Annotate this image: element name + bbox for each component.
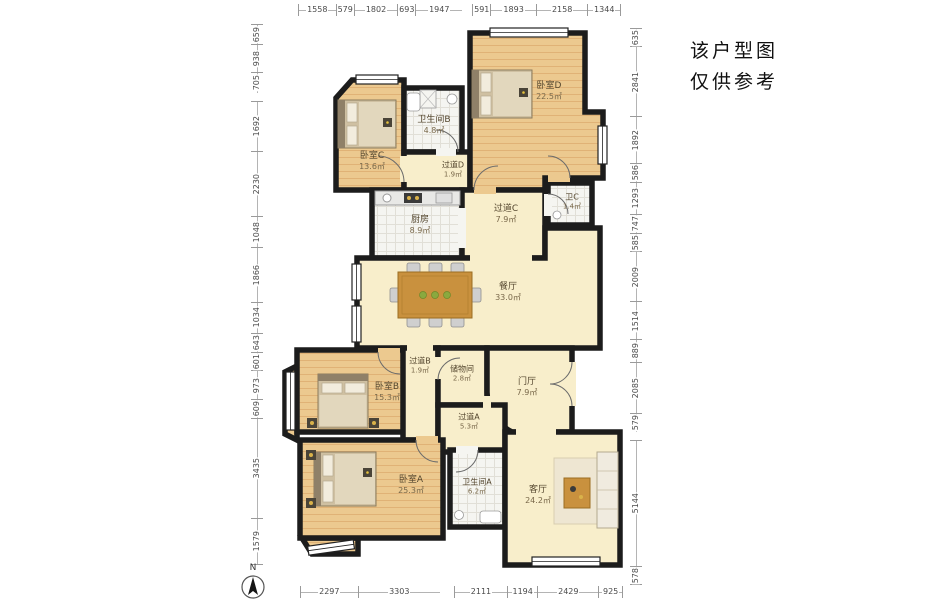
room-area: 13.6㎡ bbox=[359, 163, 385, 172]
room-name: 储物间 bbox=[450, 365, 474, 374]
dim-strip-top: 1558 579 1802 693 1947 591 1893 2158 134… bbox=[298, 4, 621, 16]
kitchen-sink bbox=[383, 194, 391, 202]
dim: 578 bbox=[630, 566, 642, 584]
dim: 5144 bbox=[630, 440, 642, 566]
dim: 889 bbox=[630, 339, 642, 362]
bed-bedroom-a bbox=[306, 450, 376, 508]
room-area: 33.0㎡ bbox=[495, 294, 521, 303]
room-area: 2.8㎡ bbox=[450, 375, 474, 383]
room-area: 24.2㎡ bbox=[525, 497, 551, 506]
disclaimer-note: 该户型图 仅供参考 bbox=[690, 36, 778, 99]
dim: 925 bbox=[598, 586, 622, 598]
bed-bedroom-d bbox=[472, 70, 532, 118]
dim: 2841 bbox=[630, 46, 642, 116]
shaft bbox=[420, 90, 436, 108]
dim: 1194 bbox=[507, 586, 537, 598]
room-label-corridor-b: 过道B 1.9㎡ bbox=[409, 357, 431, 374]
kitchen-counter bbox=[375, 191, 460, 205]
room-name: 过道B bbox=[409, 357, 431, 366]
window-bedroom-d-top bbox=[490, 28, 568, 37]
room-label-corridor-c: 过道C 7.9㎡ bbox=[494, 205, 518, 225]
floorplan-screenshot: 卧室C 13.6㎡ 卫生间B 4.8㎡ 过道D 1.9㎡ 卧室D 22.5㎡ 厨… bbox=[0, 0, 935, 607]
dim: 1558 bbox=[298, 4, 336, 16]
dim: 2297 bbox=[300, 586, 358, 598]
room-name: 门厅 bbox=[517, 378, 538, 388]
dim: 2111 bbox=[454, 586, 507, 598]
room-area: 4.8㎡ bbox=[417, 127, 450, 136]
dim: 1293 bbox=[630, 182, 642, 214]
compass-north-label: N bbox=[243, 563, 263, 573]
room-name: 过道A bbox=[458, 413, 479, 422]
coffee-table bbox=[564, 478, 590, 508]
bed-bedroom-b bbox=[307, 374, 379, 428]
room-area: 1.9㎡ bbox=[442, 171, 464, 179]
room-area: 22.5㎡ bbox=[536, 93, 562, 102]
dim: 579 bbox=[336, 4, 354, 16]
room-name: 餐厅 bbox=[495, 283, 521, 293]
dim: 1344 bbox=[587, 4, 620, 16]
room-name: 卧室A bbox=[398, 476, 424, 486]
room-area: 1.9㎡ bbox=[409, 367, 431, 375]
dim: 3303 bbox=[358, 586, 440, 598]
room-area: 8.9㎡ bbox=[410, 227, 431, 236]
room-name: 客厅 bbox=[525, 486, 551, 496]
dim: 1947 bbox=[415, 4, 462, 16]
dim: 1802 bbox=[354, 4, 397, 16]
floorplan-drawing bbox=[0, 0, 935, 607]
room-area: 6.2㎡ bbox=[462, 488, 491, 496]
room-area: 5.3㎡ bbox=[458, 423, 479, 431]
dim-strip-left: 659 938 705 1692 2230 1048 1866 1034 643… bbox=[251, 24, 263, 565]
room-area: 7.9㎡ bbox=[494, 216, 518, 225]
dim: 973 bbox=[251, 370, 263, 399]
room-name: 过道D bbox=[442, 161, 464, 170]
room-name: 卧室C bbox=[359, 152, 385, 162]
room-name: 卫C bbox=[563, 193, 581, 202]
room-name: 过道C bbox=[494, 205, 518, 215]
dim: 1866 bbox=[251, 247, 263, 302]
dim-strip-bottom: 2297 3303 2111 1194 2429 925 bbox=[300, 586, 623, 598]
dim: 1579 bbox=[251, 518, 263, 564]
window-dining-upper bbox=[352, 264, 361, 300]
window-bedroom-d-right bbox=[598, 126, 607, 164]
living-room-set bbox=[554, 452, 618, 528]
room-label-bedroom-d: 卧室D 22.5㎡ bbox=[536, 82, 562, 102]
room-label-bedroom-b: 卧室B 15.3㎡ bbox=[374, 383, 400, 403]
room-label-bathroom-b: 卫生间B 4.8㎡ bbox=[417, 116, 450, 136]
note-line-1: 该户型图 bbox=[690, 36, 778, 67]
room-label-toilet-c: 卫C 1.4㎡ bbox=[563, 193, 581, 210]
room-label-corridor-a: 过道A 5.3㎡ bbox=[458, 413, 479, 430]
dim: 591 bbox=[472, 4, 490, 16]
room-name: 卫生间A bbox=[462, 478, 491, 487]
kitchen-stove bbox=[404, 193, 422, 203]
room-area: 1.4㎡ bbox=[563, 203, 581, 211]
window-bedroom-c bbox=[356, 75, 398, 84]
dim: 2085 bbox=[630, 362, 642, 414]
room-label-storage: 储物间 2.8㎡ bbox=[450, 365, 474, 382]
window-bedroom-b-bay bbox=[286, 372, 295, 430]
room-name: 卫生间B bbox=[417, 116, 450, 126]
window-dining-lower bbox=[352, 306, 361, 342]
window-living bbox=[532, 557, 600, 566]
dim: 2230 bbox=[251, 151, 263, 216]
dim: 1893 bbox=[490, 4, 535, 16]
room-label-bathroom-a: 卫生间A 6.2㎡ bbox=[462, 478, 491, 495]
room-label-bedroom-a: 卧室A 25.3㎡ bbox=[398, 476, 424, 496]
room-label-corridor-d: 过道D 1.9㎡ bbox=[442, 161, 464, 178]
dim: 586 bbox=[630, 163, 642, 181]
dim: 585 bbox=[630, 233, 642, 251]
room-area: 25.3㎡ bbox=[398, 487, 424, 496]
dim: 601 bbox=[251, 352, 263, 370]
dim: 1048 bbox=[251, 216, 263, 247]
room-label-bedroom-c: 卧室C 13.6㎡ bbox=[359, 152, 385, 172]
dim: 705 bbox=[251, 72, 263, 93]
dim: 1892 bbox=[630, 116, 642, 163]
dim: 938 bbox=[251, 44, 263, 72]
dim: 1692 bbox=[251, 101, 263, 151]
room-area: 15.3㎡ bbox=[374, 394, 400, 403]
room-label-dining: 餐厅 33.0㎡ bbox=[495, 283, 521, 303]
dim: 609 bbox=[251, 399, 263, 418]
room-label-living: 客厅 24.2㎡ bbox=[525, 486, 551, 506]
room-area: 7.9㎡ bbox=[517, 389, 538, 398]
room-name: 卧室D bbox=[536, 82, 562, 92]
dim: 579 bbox=[630, 413, 642, 431]
dim: 2158 bbox=[536, 4, 588, 16]
dim: 747 bbox=[630, 214, 642, 233]
dim-strip-right: 635 2841 1892 586 1293 747 585 2009 1514… bbox=[630, 28, 642, 585]
room-name: 厨房 bbox=[410, 216, 431, 226]
dim: 693 bbox=[397, 4, 415, 16]
dim: 2429 bbox=[537, 586, 598, 598]
dining-table-set bbox=[390, 263, 481, 327]
dim: 1034 bbox=[251, 302, 263, 333]
dim: 643 bbox=[251, 333, 263, 352]
dim: 659 bbox=[251, 24, 263, 44]
bed-bedroom-c bbox=[338, 100, 396, 148]
room-label-foyer: 门厅 7.9㎡ bbox=[517, 378, 538, 398]
dim: 635 bbox=[630, 28, 642, 46]
note-line-2: 仅供参考 bbox=[690, 67, 778, 98]
compass-icon bbox=[242, 576, 264, 598]
room-name: 卧室B bbox=[374, 383, 400, 393]
dim: 3435 bbox=[251, 418, 263, 518]
room-label-kitchen: 厨房 8.9㎡ bbox=[410, 216, 431, 236]
dim: 1514 bbox=[630, 301, 642, 339]
dim: 2009 bbox=[630, 251, 642, 301]
